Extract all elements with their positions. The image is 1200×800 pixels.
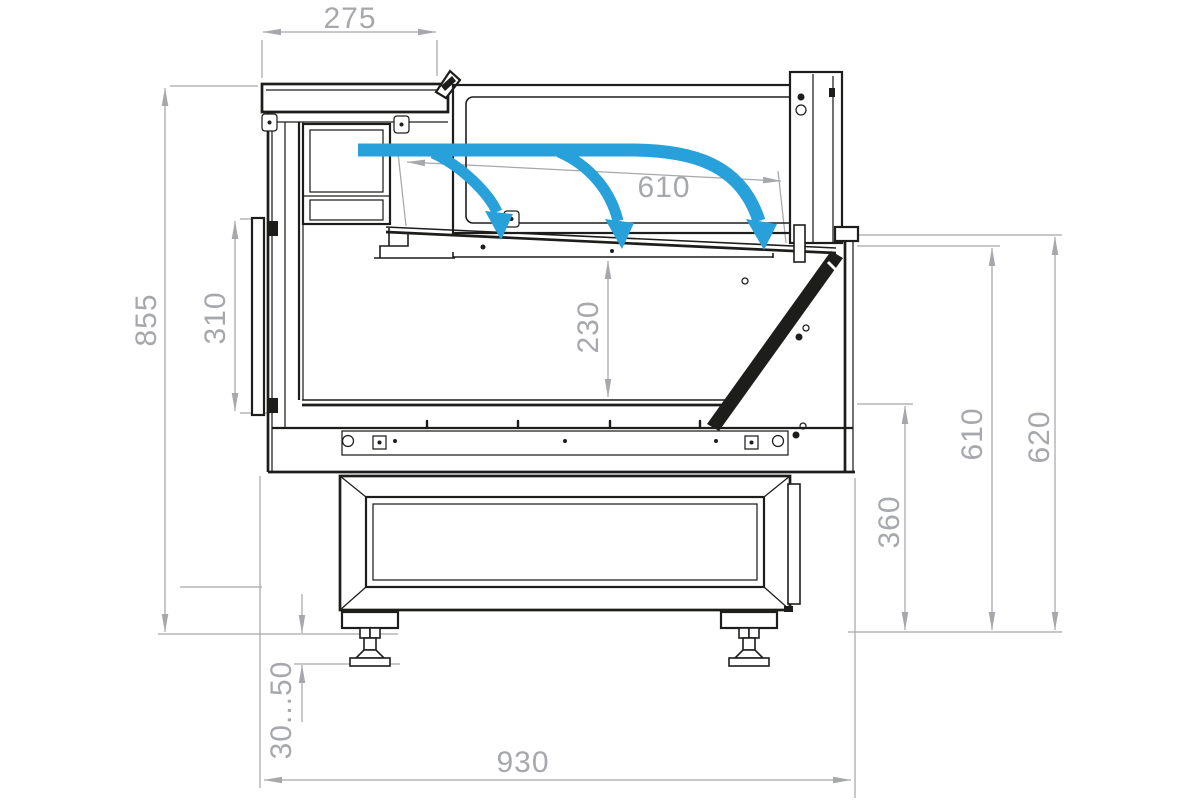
dim-base-section-height: 360 (873, 406, 906, 630)
dim-label-30-50: 30...50 (265, 661, 298, 760)
dim-display-opening: 230 (572, 261, 608, 397)
dim-front-inner-height: 610 (956, 248, 992, 630)
dim-label-930: 930 (496, 746, 549, 779)
compartment-floor (302, 278, 748, 405)
foot-left (342, 612, 398, 666)
canopy (262, 71, 460, 122)
duct-box (303, 124, 390, 224)
back-wall (268, 112, 303, 472)
dim-label-360: 360 (873, 495, 906, 548)
dim-canopy-depth: 275 (262, 2, 437, 78)
service-panel (252, 218, 278, 415)
front-diagonal-panel (707, 251, 843, 439)
drawing-canvas: 275 855 310 610 230 (0, 0, 1200, 800)
dim-label-855: 855 (130, 293, 163, 346)
airflow-branch-2 (559, 152, 618, 221)
technical-drawing: 275 855 310 610 230 (0, 0, 1200, 800)
bottom-band (268, 421, 855, 472)
dim-label-610-front: 610 (956, 407, 989, 460)
base-pedestal (340, 476, 800, 612)
dim-label-230: 230 (572, 300, 605, 353)
dim-label-310: 310 (199, 291, 232, 344)
airflow-main-stream (358, 150, 759, 221)
dim-front-height: 620 (1023, 237, 1056, 630)
case-drawing (252, 71, 858, 666)
dim-label-610-deck: 610 (637, 171, 690, 204)
dim-label-275: 275 (323, 2, 376, 35)
column-hole-filled (798, 94, 805, 101)
airflow-branch-1 (433, 153, 497, 212)
rear-column (790, 72, 842, 243)
dim-label-620: 620 (1023, 410, 1056, 463)
dim-total-height: 855 (130, 86, 258, 632)
foot-right (721, 612, 777, 666)
